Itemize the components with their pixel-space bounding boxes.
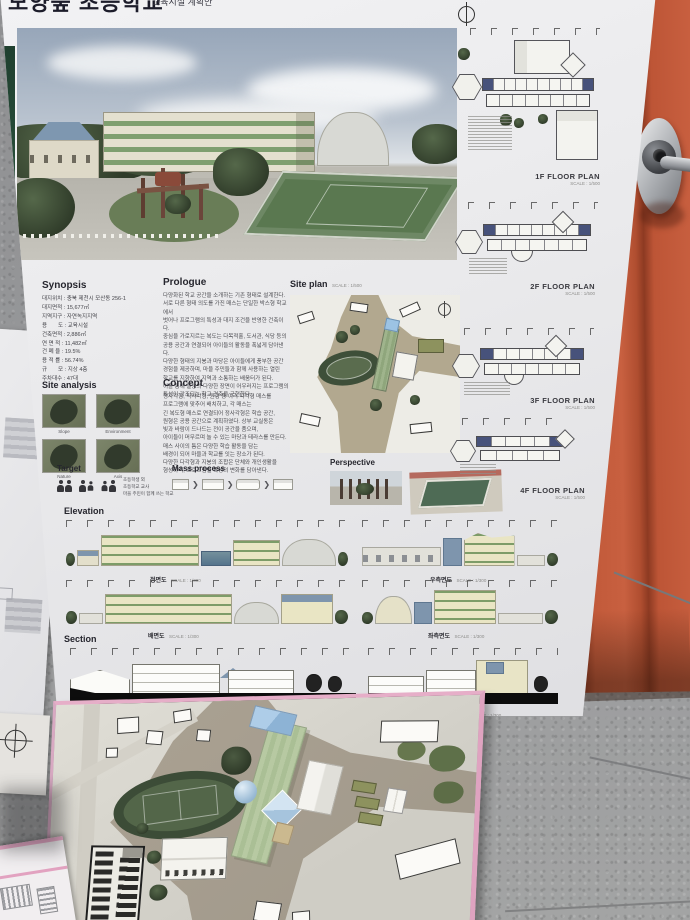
model-green-blob (397, 740, 426, 761)
floor-plan-2f-drawing (455, 214, 600, 274)
floor-plan-4f-label: 4F FLOOR PLAN SCALE : 1/500 (495, 486, 585, 500)
people-icon (57, 479, 73, 497)
dimension-marks (66, 580, 346, 587)
mass-step-2 (202, 479, 224, 490)
model-house (253, 900, 282, 920)
plan-tree (410, 395, 420, 405)
compass-needle (466, 2, 467, 26)
dimension-marks (462, 418, 554, 425)
model-white-pair (383, 787, 408, 814)
perspective-image-field (409, 469, 502, 514)
perspective-image-playground (330, 471, 402, 505)
synopsis-item: 대지면적 : 15,677㎡ (42, 304, 160, 313)
fence (23, 234, 223, 238)
model-green-blob (429, 745, 466, 772)
people-icon (79, 479, 95, 497)
model-dark-complex (84, 845, 145, 920)
synopsis-item: 지역지구 : 자연녹지지역 (42, 313, 160, 322)
main-render-image (17, 28, 457, 260)
plan-house (399, 301, 421, 317)
sketch-block (4, 598, 42, 634)
section-heading: Section (64, 634, 97, 644)
site-plan-heading: Site plan (290, 279, 328, 289)
dimension-marks (468, 202, 598, 209)
site-model-board (43, 691, 485, 920)
concept-section: Concept 정사각형, 직사각형, 원형 등 여러 다각형 매스를 프로그램… (163, 378, 289, 476)
elevation-front (66, 530, 348, 566)
synopsis-item: 용 도 : 교육시설 (42, 322, 160, 331)
poster-subtitle: 교육시설 계획안 (152, 0, 212, 8)
concept-heading: Concept (163, 378, 289, 389)
room-legend (469, 258, 507, 274)
target-section: Target 초등학생 외 초등학교 교사 마을 주민이 함께 쓰는 학교 (57, 464, 177, 497)
analysis-map-label: Environment (96, 429, 140, 434)
dimension-marks (66, 520, 346, 527)
stack-pink-line (0, 866, 68, 882)
dimension-marks (362, 520, 558, 527)
floor-plan-4f-drawing (450, 430, 590, 474)
floor-plan-1f-drawing (452, 40, 604, 168)
arrow-icon: ❯ (263, 479, 270, 490)
green-edge-strip (0, 46, 15, 294)
room-legend (460, 464, 496, 476)
site-plan-scale: SCALE : 1/500 (332, 283, 362, 288)
target-heading: Target (57, 464, 177, 473)
synopsis-heading: Synopsis (42, 280, 160, 291)
model-house (106, 748, 118, 758)
model-lower-gym (160, 837, 228, 881)
board-gap-shadow (0, 788, 64, 852)
room-legend (464, 382, 510, 396)
synopsis-item: 용 적 률 : 56.74% (42, 357, 160, 366)
model-tree (149, 884, 168, 900)
poster-title: 모양숲 초등학교 (8, 0, 164, 17)
site-plan-section: Site plan SCALE : 1/500 (290, 274, 462, 453)
elevation-heading: Elevation (64, 506, 104, 516)
dimension-marks (362, 580, 558, 587)
sketch-block (3, 417, 39, 459)
site-plan-drawing (290, 295, 460, 453)
floor-plan-2f-label: 2F FLOOR PLAN SCALE : 1/500 (505, 282, 595, 296)
tile-grout-line (589, 756, 690, 789)
model-house (292, 910, 310, 920)
synopsis-item: 규 모 : 지상 4층 (42, 366, 160, 375)
plan-tree (336, 331, 348, 343)
target-caption: 초등학생 외 초등학교 교사 마을 주민이 함께 쓰는 학교 (123, 477, 174, 497)
model-planter (358, 812, 384, 826)
model-house (146, 730, 164, 745)
sketch-line (0, 586, 13, 600)
plan-tree (370, 399, 382, 411)
plan-gym (392, 351, 418, 380)
plan-olive-block (418, 339, 444, 353)
tree (412, 124, 457, 164)
stack-sketch (36, 886, 58, 914)
synopsis-item: 건축면적 : 2,886㎡ (42, 331, 160, 340)
elevation-right (362, 532, 558, 566)
mass-step-1 (172, 479, 189, 490)
analysis-map (96, 394, 140, 428)
plan-house (299, 413, 321, 427)
mass-step-3 (236, 479, 260, 490)
arrow-icon: ❯ (192, 479, 199, 490)
plan-blue-roof (384, 318, 400, 333)
model-house (117, 716, 139, 734)
plan-house (410, 422, 433, 434)
model-big-building (380, 720, 439, 742)
synopsis-item: 건 폐 율 : 19.5% (42, 348, 160, 357)
elevation-rear-label: 배면도 SCALE : 1/300 (148, 625, 199, 643)
plan-house (297, 311, 315, 325)
main-poster-board: 모양숲 초등학교 교육시설 계획안 (0, 0, 660, 716)
cloud (47, 46, 197, 80)
photo-scene: 모양숲 초등학교 교육시설 계획안 (0, 0, 690, 920)
analysis-map (42, 394, 86, 428)
tile-grout-line (505, 900, 690, 912)
synopsis-section: Synopsis 대지위치 : 충북 제천시 모산동 256-1 대지면적 : … (42, 280, 160, 384)
mass-step-4 (273, 479, 293, 490)
elevation-left-label: 좌측면도 SCALE : 1/300 (428, 625, 484, 643)
dimension-marks (464, 328, 594, 335)
floor-plan-1f-label: 1F FLOOR PLAN SCALE : 1/500 (510, 172, 600, 186)
floor-plan-3f-drawing (452, 340, 597, 396)
elevation-left (362, 588, 558, 624)
mass-process-heading: Mass process (172, 464, 302, 473)
dimension-marks (470, 28, 600, 35)
handle-shadow (640, 202, 684, 228)
site-analysis-heading: Site analysis (42, 380, 160, 390)
model-angled-building (395, 838, 461, 880)
people-icon (101, 479, 117, 497)
dimension-marks (368, 648, 558, 655)
compass-needle (444, 301, 445, 318)
mass-process-section: Mass process ❯ ❯ ❯ (172, 464, 302, 490)
compass-board (0, 713, 50, 796)
synopsis-item: 대지위치 : 충북 제천시 모산동 256-1 (42, 295, 160, 304)
elevation-rear (66, 588, 348, 624)
room-legend (468, 116, 512, 152)
playground-equipment (135, 160, 215, 222)
synopsis-item: 연 면 적 : 11,482㎡ (42, 340, 160, 349)
stack-sketch (0, 884, 33, 910)
analysis-map-label: Slope (42, 429, 86, 434)
prologue-heading: Prologue (163, 277, 289, 288)
arrow-icon: ❯ (227, 479, 234, 490)
model-house (196, 729, 211, 742)
floor-plan-3f-label: 3F FLOOR PLAN SCALE : 1/500 (505, 396, 595, 410)
dimension-marks (70, 648, 350, 655)
